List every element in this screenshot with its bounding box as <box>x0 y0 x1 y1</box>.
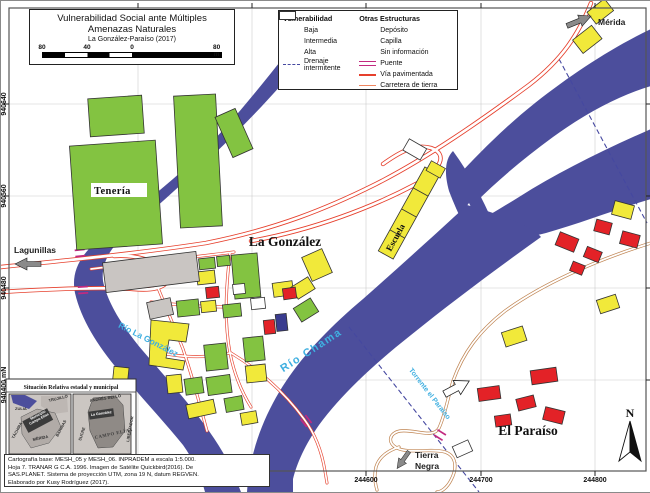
map-subtitle: La González-Paraíso (2017) <box>30 36 234 43</box>
legend-vulnerability-column: Vulnerabilidad Baja Intermedia Alta Dren… <box>283 14 359 87</box>
y-axis-label-940640: 940640 <box>1 92 8 115</box>
chapel-building <box>275 313 288 331</box>
scale-label-40: 40 <box>83 44 90 51</box>
map-sheet: Tenería La González El Paraíso Escuela L… <box>0 0 650 493</box>
legend-item-baja: Baja <box>283 25 359 36</box>
y-axis-label-940560: 940560 <box>1 184 8 207</box>
lagunillas-arrow-icon <box>15 258 41 270</box>
lagunillas-label: Lagunillas <box>14 245 56 255</box>
puente-line-icon <box>359 61 376 66</box>
map-title-line1: Vulnerabilidad Social ante Múltiples <box>30 13 234 24</box>
teneria-label: Tenería <box>94 186 131 197</box>
x-axis-label-244800: 244800 <box>583 477 606 484</box>
el-paraiso-label: El Paraíso <box>498 423 558 438</box>
legend-structures-column: Otras Estructuras Depósito Capilla Sin i… <box>359 14 455 87</box>
sin-informacion-swatch-icon <box>279 11 296 20</box>
credits-line2: Hoja 7. TRANAR G C.A. 1996. Imagen de Sa… <box>8 465 266 473</box>
y-axis-label-940480: 940480 <box>1 276 8 299</box>
x-axis-label-244700: 244700 <box>469 477 492 484</box>
credits-box: Cartografía base: MESH_05 y MESH_06. INP… <box>4 454 270 487</box>
inset-state-map: ZULIA TRUJILLO TÁCHIRA Municipio Campo E… <box>9 393 71 454</box>
scale-label-80-left: 80 <box>38 44 45 51</box>
north-label: N <box>626 406 635 420</box>
legend-item-drenaje: Drenaje intermitente <box>283 58 359 73</box>
inset-municipal-map: ANDRÉS BELLO La González SUCRE CAMPO ELÍ… <box>73 393 135 454</box>
legend-item-puente: Puente <box>359 58 455 69</box>
legend-item-drenaje-label-line1: Drenaje <box>304 58 329 65</box>
title-box: Vulnerabilidad Social ante Múltiples Ame… <box>29 9 235 65</box>
carretera-tierra-line-icon <box>359 85 376 86</box>
scale-bar-graphic <box>42 52 222 58</box>
legend-item-drenaje-label-line2: intermitente <box>304 65 341 72</box>
x-axis-label-244600: 244600 <box>354 477 377 484</box>
inset-zulia-label: ZULIA <box>15 406 27 411</box>
via-pavimentada-line-icon <box>359 74 376 76</box>
map-title-line2: Amenazas Naturales <box>30 24 234 35</box>
credits-line3: SAS.PLANET. Sistema de proyección UTM, z… <box>8 472 266 480</box>
legend-item-sin-informacion: Sin información <box>359 47 455 58</box>
credits-line1: Cartografía base: MESH_05 y MESH_06. INP… <box>8 457 266 465</box>
legend-item-intermedia-label: Intermedia <box>304 38 337 45</box>
merida-label: Mérida <box>598 17 626 27</box>
north-arrow-icon: N <box>619 406 641 461</box>
scale-label-80m: 80 m <box>213 44 220 58</box>
legend-item-intermedia: Intermedia <box>283 36 359 47</box>
tierra-negra-label-line2: Negra <box>415 461 439 471</box>
legend-structures-header: Otras Estructuras <box>359 14 455 23</box>
inset-title: Situación Relativa estadal y municipal <box>24 385 119 391</box>
legend-item-carretera-tierra: Carretera de tierra <box>359 80 455 91</box>
legend-item-deposito-label: Depósito <box>380 27 408 34</box>
legend-item-puente-label: Puente <box>380 60 402 67</box>
legend-item-capilla-label: Capilla <box>380 38 401 45</box>
drenaje-line-icon <box>283 64 300 65</box>
legend: Vulnerabilidad Baja Intermedia Alta Dren… <box>278 10 458 90</box>
la-gonzalez-label: La González <box>249 234 321 249</box>
scale-bar: 80 40 0 80 m <box>42 44 222 59</box>
credits-line4: Elaborado por Kusy Rodríguez (2017). <box>8 480 266 488</box>
legend-item-alta: Alta <box>283 47 359 58</box>
legend-item-sin-informacion-label: Sin información <box>380 49 428 56</box>
legend-item-via-pavimentada-label: Vía pavimentada <box>380 71 433 78</box>
legend-item-deposito: Depósito <box>359 25 455 36</box>
inset-map: Situación Relativa estadal y municipal Z… <box>6 379 136 457</box>
legend-item-via-pavimentada: Vía pavimentada <box>359 69 455 80</box>
trail-arrow-icon <box>441 374 473 401</box>
tierra-negra-label-line1: Tierra <box>415 450 439 460</box>
legend-item-carretera-tierra-label: Carretera de tierra <box>380 82 437 89</box>
legend-item-alta-label: Alta <box>304 49 316 56</box>
tierra-negra-arrow-icon <box>393 449 413 472</box>
scale-label-0: 0 <box>130 44 134 51</box>
legend-item-baja-label: Baja <box>304 27 318 34</box>
legend-item-capilla: Capilla <box>359 36 455 47</box>
